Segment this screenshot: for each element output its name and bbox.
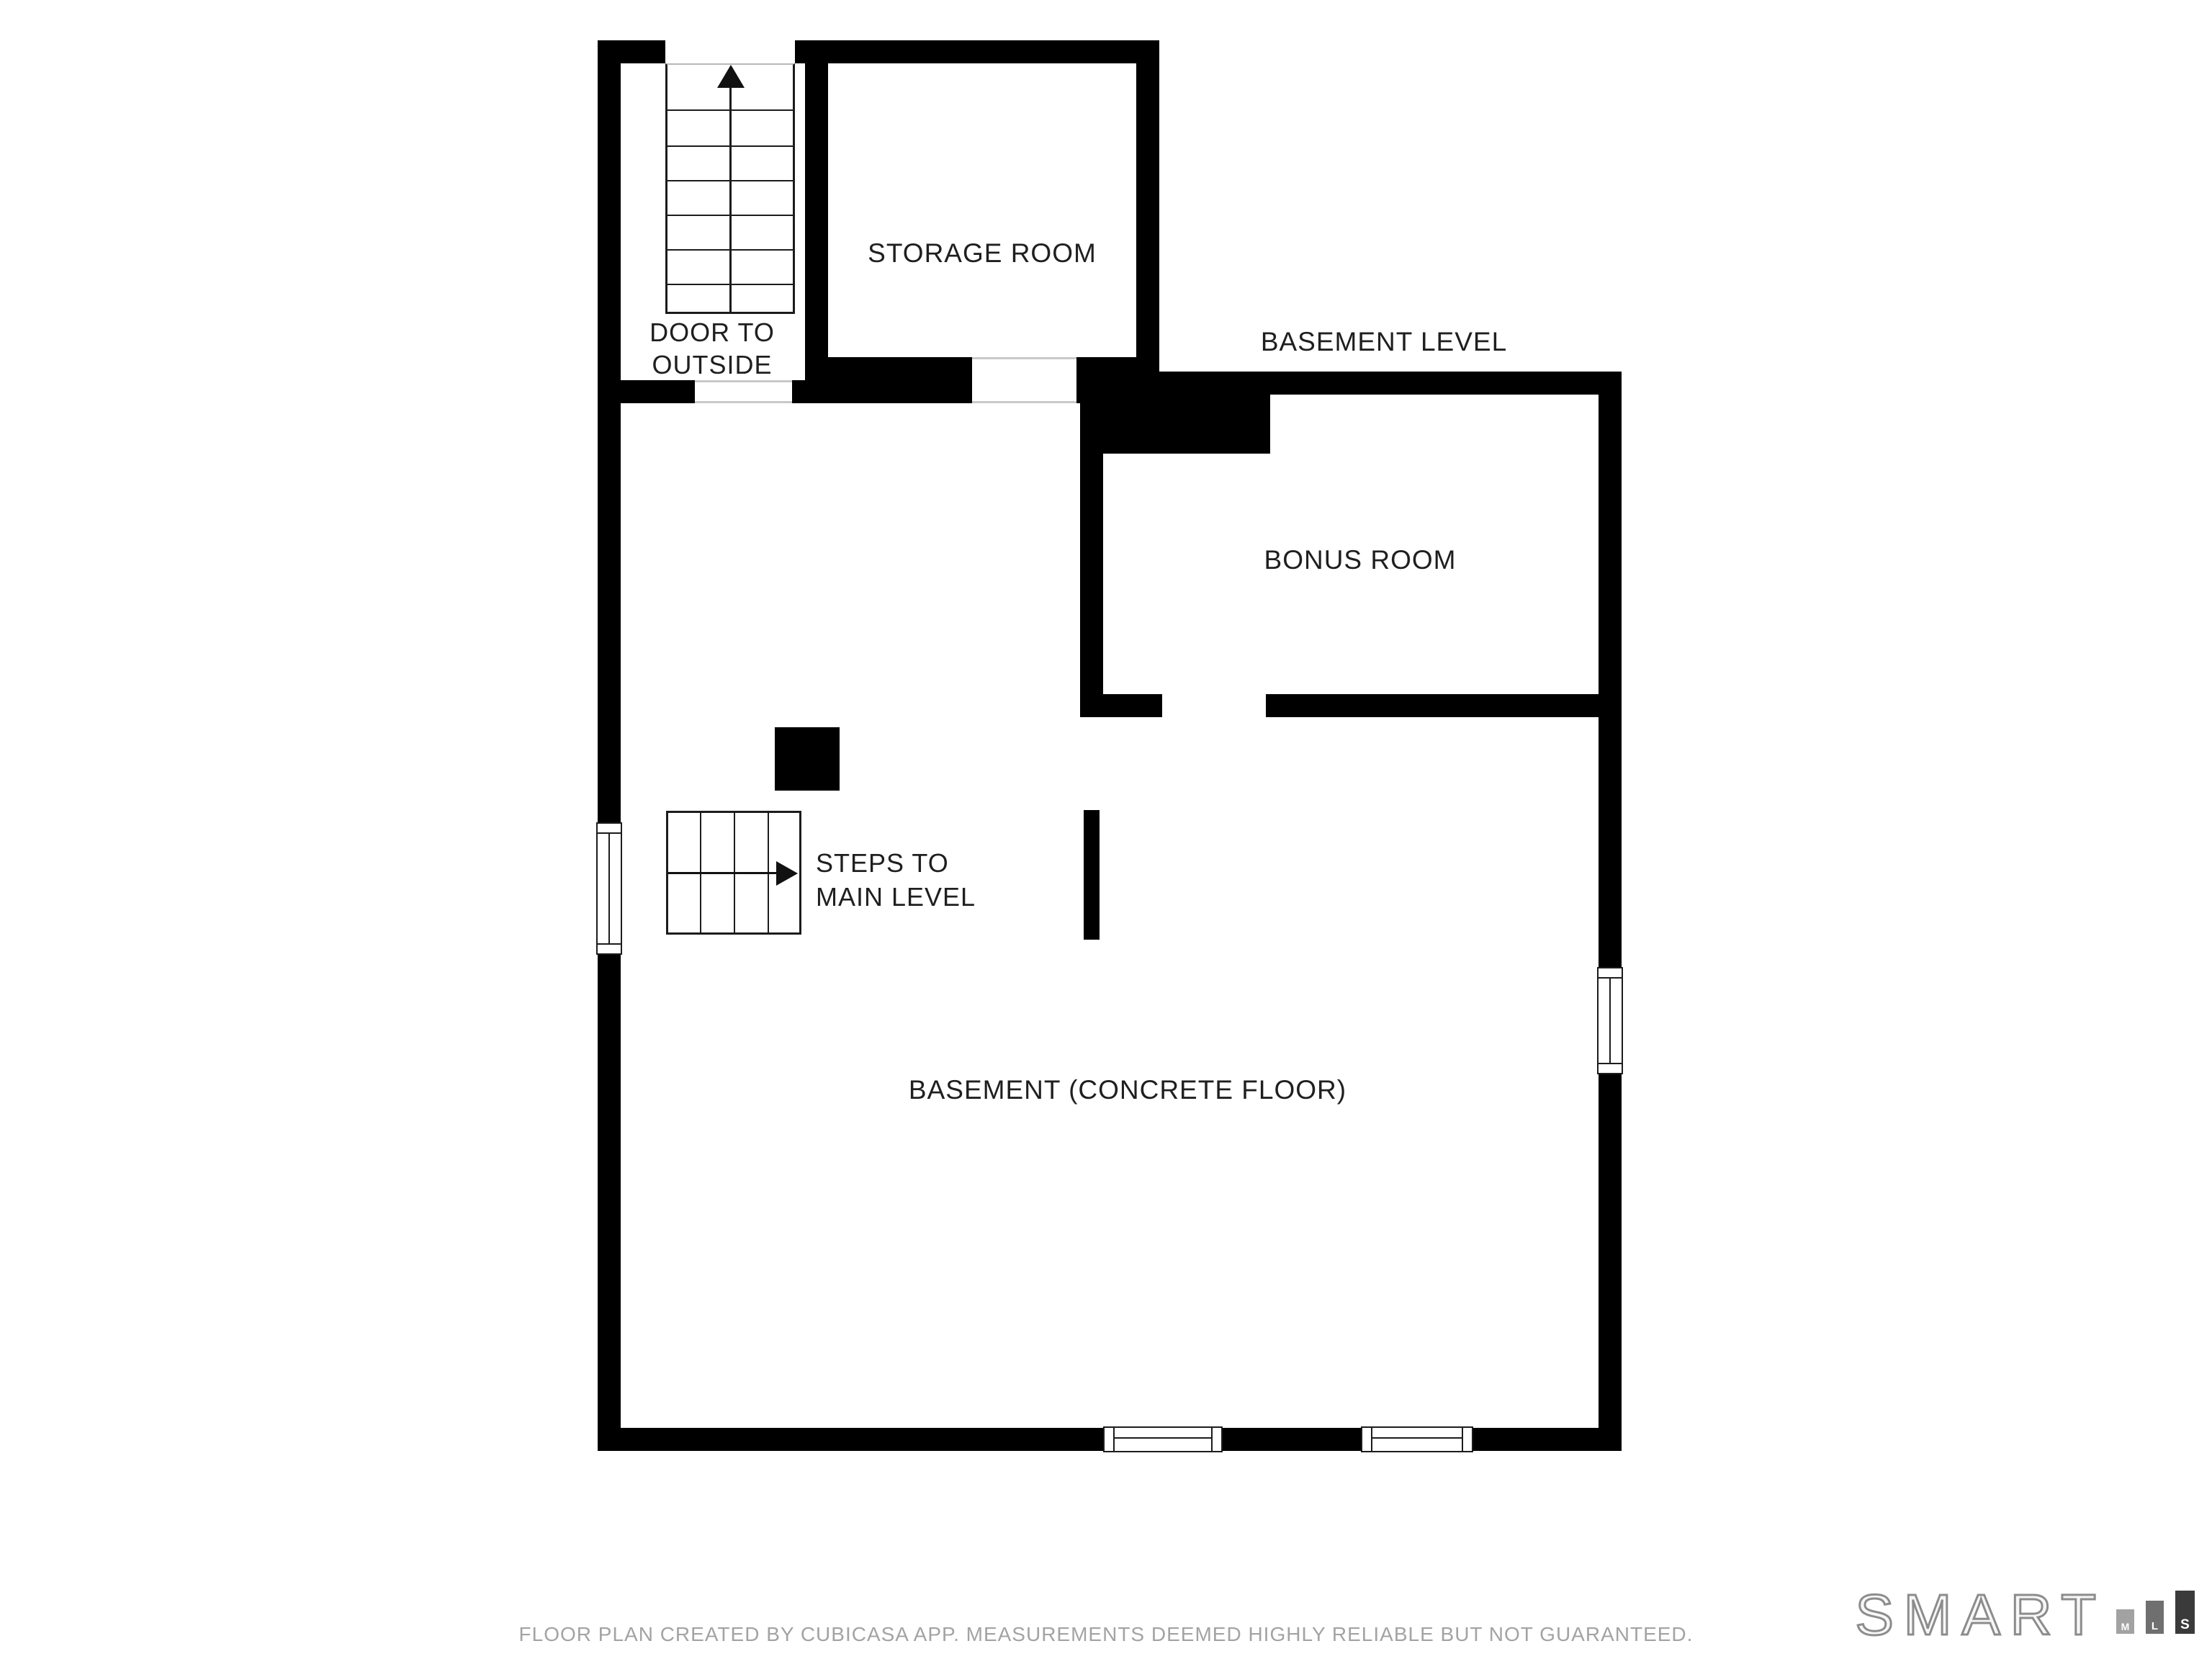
window-cap [1462, 1428, 1463, 1451]
support-column [775, 727, 840, 791]
chimney-block [1080, 395, 1270, 454]
door-to-outside-line1: DOOR TO [649, 316, 775, 349]
room-label-bonus: BONUS ROOM [1264, 545, 1457, 575]
stairs-to-outside [665, 63, 795, 314]
window-bottom-wall-1 [1103, 1426, 1223, 1452]
steps-line1: STEPS TO [816, 846, 976, 880]
logo-bar-m-letter: M [2121, 1622, 2130, 1634]
wall-main-top-right [1159, 372, 1622, 395]
stair-center-line [668, 872, 778, 874]
room-label-basement: BASEMENT (CONCRETE FLOOR) [909, 1075, 1346, 1105]
wall-storage-bottom-left [805, 357, 972, 380]
window-cap [1599, 1063, 1622, 1064]
stair-center-line [729, 85, 732, 312]
steps-to-main-level-label: STEPS TO MAIN LEVEL [816, 846, 976, 914]
wall-right-upper [1599, 395, 1622, 967]
wall-left-upper [598, 403, 621, 822]
door-threshold-stairwell-bottom [695, 401, 792, 403]
wall-bonus-bottom-right [1266, 694, 1599, 717]
wall-bottom-b [1223, 1428, 1366, 1451]
door-threshold-storage-top [972, 357, 1076, 359]
logo-bar-l: L [2146, 1601, 2164, 1634]
window-right-wall [1597, 967, 1623, 1074]
window-left-wall [596, 822, 622, 955]
wall-main-top-a [598, 380, 695, 403]
up-arrow-icon [717, 65, 745, 88]
wall-right-lower [1599, 1074, 1622, 1451]
wall-bottom-c [1473, 1428, 1622, 1451]
floor-plan-canvas: BASEMENT LEVEL STORAGE ROOM BONUS ROOM B… [0, 0, 2212, 1659]
wall-main-top-b [792, 380, 972, 403]
window-cap [1113, 1428, 1115, 1451]
door-threshold-storage-bottom [972, 401, 1076, 403]
wall-storage-left [805, 63, 828, 380]
wall-stairwell-left [598, 40, 621, 403]
wall-left-lower [598, 955, 621, 1451]
window-pane-line [1372, 1437, 1462, 1439]
window-pane-line [608, 834, 610, 943]
wall-bonus-bottom-left [1080, 694, 1162, 717]
door-to-outside-line2: OUTSIDE [649, 349, 775, 381]
window-bottom-wall-2 [1361, 1426, 1473, 1452]
logo-bar-l-letter: L [2152, 1621, 2158, 1634]
window-cap [1211, 1428, 1213, 1451]
wall-storage-right [1136, 40, 1159, 380]
wall-storage-bottom-right [1076, 357, 1159, 380]
logo-bar-s: S [2175, 1591, 2195, 1634]
window-pane-line [1609, 979, 1611, 1063]
logo-bar-m: M [2116, 1609, 2134, 1634]
wall-stub-freestanding [1084, 810, 1100, 940]
door-to-outside-label: DOOR TO OUTSIDE [649, 316, 775, 381]
room-label-storage: STORAGE ROOM [868, 238, 1097, 269]
window-pane-line [1115, 1437, 1211, 1439]
logo-bars: M L S [2116, 1591, 2195, 1634]
logo-wordmark: SMART [1855, 1586, 2106, 1645]
steps-line2: MAIN LEVEL [816, 880, 976, 914]
window-cap [1371, 1428, 1372, 1451]
logo-bar-s-letter: S [2180, 1618, 2190, 1634]
stairs-to-main-level [666, 811, 801, 935]
wall-top-right-segment [795, 40, 1159, 63]
page-title: BASEMENT LEVEL [1261, 327, 1507, 357]
smart-mls-logo: SMART M L S [1855, 1586, 2195, 1645]
right-arrow-icon [776, 861, 798, 886]
window-cap [598, 943, 621, 945]
wall-bottom-a [598, 1428, 1108, 1451]
